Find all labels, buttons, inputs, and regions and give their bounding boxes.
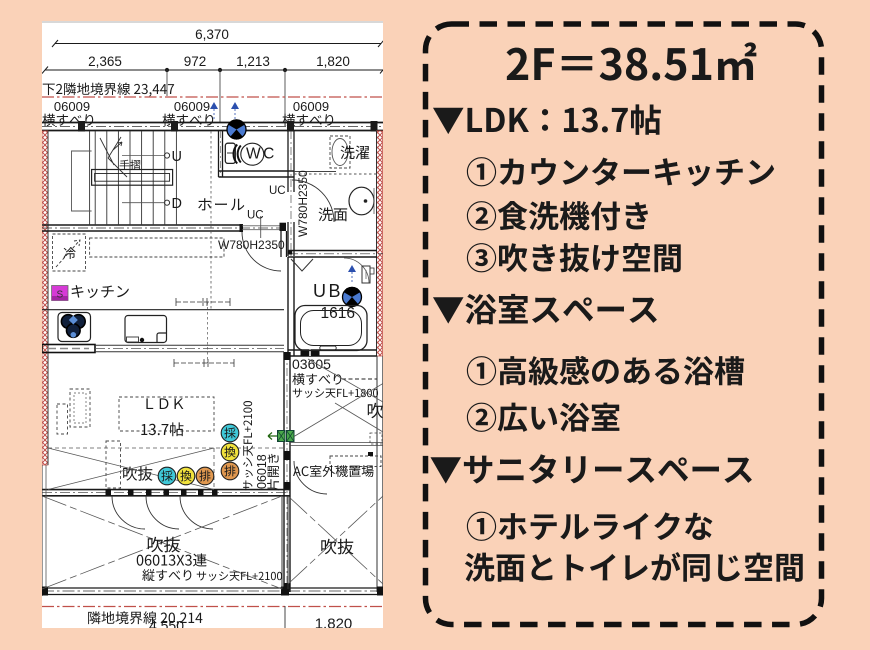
svg-text:06009: 06009 [174,99,210,114]
svg-text:03605: 03605 [292,356,331,372]
svg-text:UC: UC [269,185,286,197]
svg-text:W780H2350: W780H2350 [218,238,285,252]
svg-text:WC: WC [246,146,277,163]
svg-text:D: D [172,196,182,212]
svg-text:1,820: 1,820 [316,54,350,69]
svg-text:UB: UB [313,281,343,301]
svg-text:6,370: 6,370 [195,27,229,42]
svg-text:06018: 06018 [255,454,269,489]
svg-text:UC: UC [247,210,264,222]
svg-text:1,213: 1,213 [236,54,270,69]
svg-text:06009: 06009 [54,99,90,114]
svg-text:972: 972 [184,54,207,69]
svg-text:1616: 1616 [321,305,355,322]
svg-text:U: U [172,149,182,165]
svg-text:06009: 06009 [293,99,329,114]
svg-text:2,365: 2,365 [88,54,122,69]
svg-text:S: S [56,290,63,301]
